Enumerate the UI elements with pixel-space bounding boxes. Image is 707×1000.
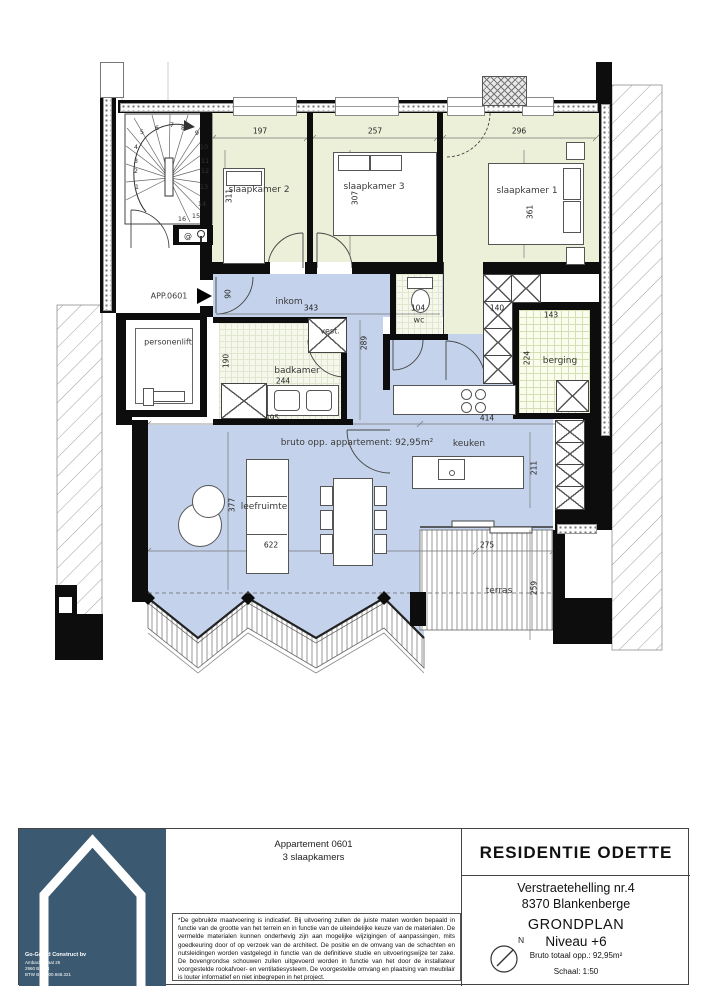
wall xyxy=(596,62,612,102)
sofa-cushion-line xyxy=(246,496,287,497)
project-address-city: 8370 Blankenberge xyxy=(462,897,690,913)
stair-step: 5 xyxy=(140,128,144,136)
stair-step: 9 xyxy=(195,129,199,137)
stair-step: 2 xyxy=(134,167,138,175)
apartment-entry-label: APP.0601 xyxy=(151,292,188,301)
wall xyxy=(437,113,443,262)
plan-type: GRONDPLAN xyxy=(462,917,690,933)
washing-machine xyxy=(556,380,589,412)
dim: 140 xyxy=(490,304,504,313)
key-icon-stem xyxy=(200,236,202,242)
dining-table xyxy=(333,478,373,566)
corridor-floor xyxy=(347,317,383,425)
company-name: Go-Grand Construct bv xyxy=(25,952,86,959)
pillow xyxy=(370,155,402,171)
apartment-type: 3 slaapkamers xyxy=(166,851,461,864)
coffee-table xyxy=(192,485,225,518)
wall xyxy=(200,274,213,280)
vestiaire-closet xyxy=(308,318,347,353)
wall xyxy=(213,419,353,425)
nightstand xyxy=(566,142,585,160)
wall-notch xyxy=(59,597,72,613)
stair-step: 8 xyxy=(181,124,185,132)
wall xyxy=(200,306,213,317)
dim: 190 xyxy=(222,354,231,368)
dim: 296 xyxy=(512,127,526,136)
insulation-strip xyxy=(601,104,610,436)
closet xyxy=(555,442,585,466)
wall xyxy=(120,410,207,417)
cooktop-burner xyxy=(475,389,486,400)
nightstand xyxy=(566,247,585,265)
stair-step: 15 xyxy=(192,212,200,220)
wall xyxy=(200,313,207,417)
dim: 143 xyxy=(544,311,558,320)
closet xyxy=(483,355,513,384)
north-label: N xyxy=(518,935,524,945)
room-label-wc: wc xyxy=(414,316,425,325)
wall xyxy=(390,274,396,340)
room-label-slaapkamer1: slaapkamer 1 xyxy=(496,186,557,196)
stair-step: 6 xyxy=(155,124,159,132)
cooktop-burner xyxy=(461,402,472,413)
dim: 259 xyxy=(530,581,539,595)
chair xyxy=(320,486,333,506)
company-info: Go-Grand Construct bv Ambachtstraat 25 2… xyxy=(25,952,86,978)
wall xyxy=(305,262,317,274)
roof-access-box xyxy=(100,62,124,98)
wall xyxy=(513,413,590,419)
shower xyxy=(221,383,267,419)
shaft-hatch xyxy=(482,76,527,106)
room-label-keuken: keuken xyxy=(453,439,485,449)
wall xyxy=(410,592,426,626)
dim: 622 xyxy=(264,541,278,550)
room-label-personenlift: personenlift xyxy=(144,338,192,347)
kitchen-island xyxy=(412,456,524,489)
stair-step: 1 xyxy=(135,183,139,191)
room-label-inkom: inkom xyxy=(275,297,302,307)
toilet-tank xyxy=(407,277,433,289)
wall xyxy=(120,313,205,320)
chair xyxy=(320,534,333,554)
cooktop-burner xyxy=(475,402,486,413)
entry-arrow-icon xyxy=(197,288,212,304)
dim: 211 xyxy=(530,461,539,475)
disclaimer-text: *De gebruikte maatvoering is indicatief.… xyxy=(172,913,461,981)
stair-step: 10 xyxy=(200,143,208,151)
dim: 311 xyxy=(225,189,234,203)
chair xyxy=(374,510,387,530)
wall xyxy=(553,530,565,602)
company-logo: Go-Grand Construct bv Ambachtstraat 25 2… xyxy=(19,829,166,986)
dim: 104 xyxy=(411,304,425,313)
pillow xyxy=(563,201,581,233)
sofa xyxy=(246,459,289,574)
closet xyxy=(555,420,585,444)
sink-drain xyxy=(449,470,455,476)
chair xyxy=(374,534,387,554)
room-label-vestiaire: vest. xyxy=(320,327,340,336)
washbasin xyxy=(274,390,300,411)
lift-mechanism xyxy=(143,388,154,406)
company-vat: BTW BE 1000.668.321 xyxy=(25,972,86,978)
closet xyxy=(483,274,513,303)
project-title: RESIDENTIE ODETTE xyxy=(462,829,690,876)
room-label-terras: terras xyxy=(486,586,513,596)
wall xyxy=(483,262,612,274)
dim: 289 xyxy=(360,336,369,350)
room-label-slaapkamer2: slaapkamer 2 xyxy=(228,185,289,195)
stair-step: 3 xyxy=(134,157,138,165)
closet xyxy=(511,274,541,303)
wall xyxy=(352,262,443,274)
room-label-badkamer: badkamer xyxy=(274,366,320,376)
kitchen-counter xyxy=(393,385,516,415)
intercom-icon: @ xyxy=(184,232,192,241)
window xyxy=(335,97,399,116)
chair xyxy=(374,486,387,506)
dim: 257 xyxy=(368,127,382,136)
dim: 90 xyxy=(224,289,233,299)
dim: 307 xyxy=(351,191,360,205)
wall xyxy=(132,420,148,602)
dim: 224 xyxy=(523,351,532,365)
wall xyxy=(513,302,599,310)
wall xyxy=(553,598,612,644)
apartment-number: Appartement 0601 xyxy=(166,838,461,851)
dim: 343 xyxy=(304,304,318,313)
stair-step: 11 xyxy=(201,157,209,165)
closet xyxy=(483,328,513,357)
dim: 495 xyxy=(265,414,279,423)
stair-step: 4 xyxy=(134,143,138,151)
closet xyxy=(555,464,585,488)
stair-step: 16 xyxy=(178,215,186,223)
dim: 361 xyxy=(526,205,535,219)
insulation-strip xyxy=(103,97,112,311)
pillow xyxy=(338,155,370,171)
wall xyxy=(383,334,390,390)
sofa-cushion-line xyxy=(246,534,287,535)
dim: 377 xyxy=(228,498,237,512)
title-block: Go-Grand Construct bv Ambachtstraat 25 2… xyxy=(18,828,689,985)
pillow xyxy=(226,171,262,186)
window xyxy=(233,97,297,116)
apartment-cell: Appartement 0601 3 slaapkamers *De gebru… xyxy=(166,829,461,986)
floor-plan: APP.0601 @ 1 2 3 4 5 6 7 8 9 10 11 12 13… xyxy=(0,0,707,700)
dim: 244 xyxy=(276,377,290,386)
stair-step: 7 xyxy=(170,121,174,129)
dim: 414 xyxy=(480,414,494,423)
stair-step: 12 xyxy=(201,167,209,175)
cooktop-burner xyxy=(461,389,472,400)
wall xyxy=(390,334,448,340)
dim: 197 xyxy=(253,127,267,136)
project-address-street: Verstraetehelling nr.4 xyxy=(462,881,690,897)
window xyxy=(447,97,485,116)
insulation-strip xyxy=(557,524,597,534)
room-label-berging: berging xyxy=(543,356,577,366)
wall xyxy=(77,614,103,660)
closet xyxy=(555,486,585,510)
project-cell: RESIDENTIE ODETTE Verstraetehelling nr.4… xyxy=(461,829,690,986)
chair xyxy=(320,510,333,530)
washbasin xyxy=(306,390,332,411)
wall xyxy=(307,113,313,262)
room-label-leefruimte: leefruimte xyxy=(241,502,287,512)
pillow xyxy=(563,168,581,200)
dim: 275 xyxy=(480,541,494,550)
stair-step: 14 xyxy=(198,200,206,208)
wall xyxy=(590,302,599,419)
gross-area-note: bruto opp. appartement: 92,95m² xyxy=(281,438,433,448)
stair-step: 13 xyxy=(200,183,208,191)
